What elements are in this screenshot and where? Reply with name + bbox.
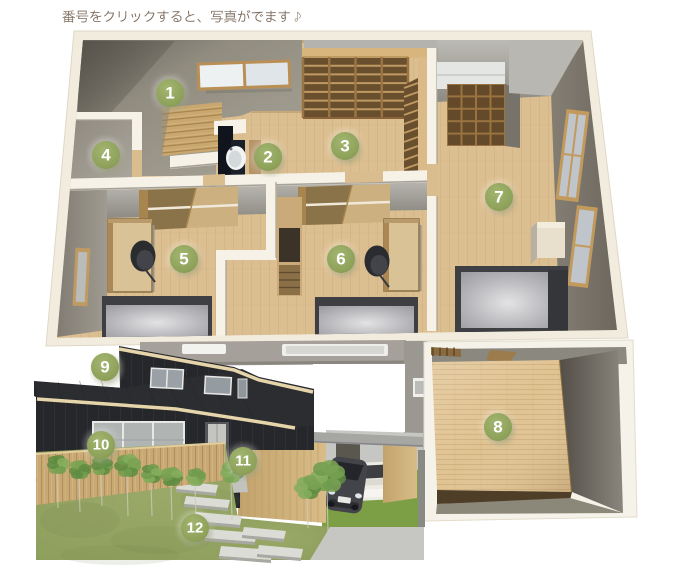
svg-text:11: 11 [235, 453, 251, 470]
svg-text:9: 9 [100, 358, 109, 377]
svg-text:1: 1 [165, 84, 174, 103]
svg-text:7: 7 [494, 188, 503, 207]
svg-text:5: 5 [179, 250, 188, 269]
svg-text:4: 4 [101, 146, 111, 165]
svg-text:3: 3 [340, 137, 349, 156]
svg-text:12: 12 [187, 520, 204, 537]
svg-text:10: 10 [93, 437, 110, 454]
svg-text:8: 8 [493, 418, 502, 437]
svg-text:2: 2 [263, 148, 272, 167]
svg-text:6: 6 [336, 250, 345, 269]
